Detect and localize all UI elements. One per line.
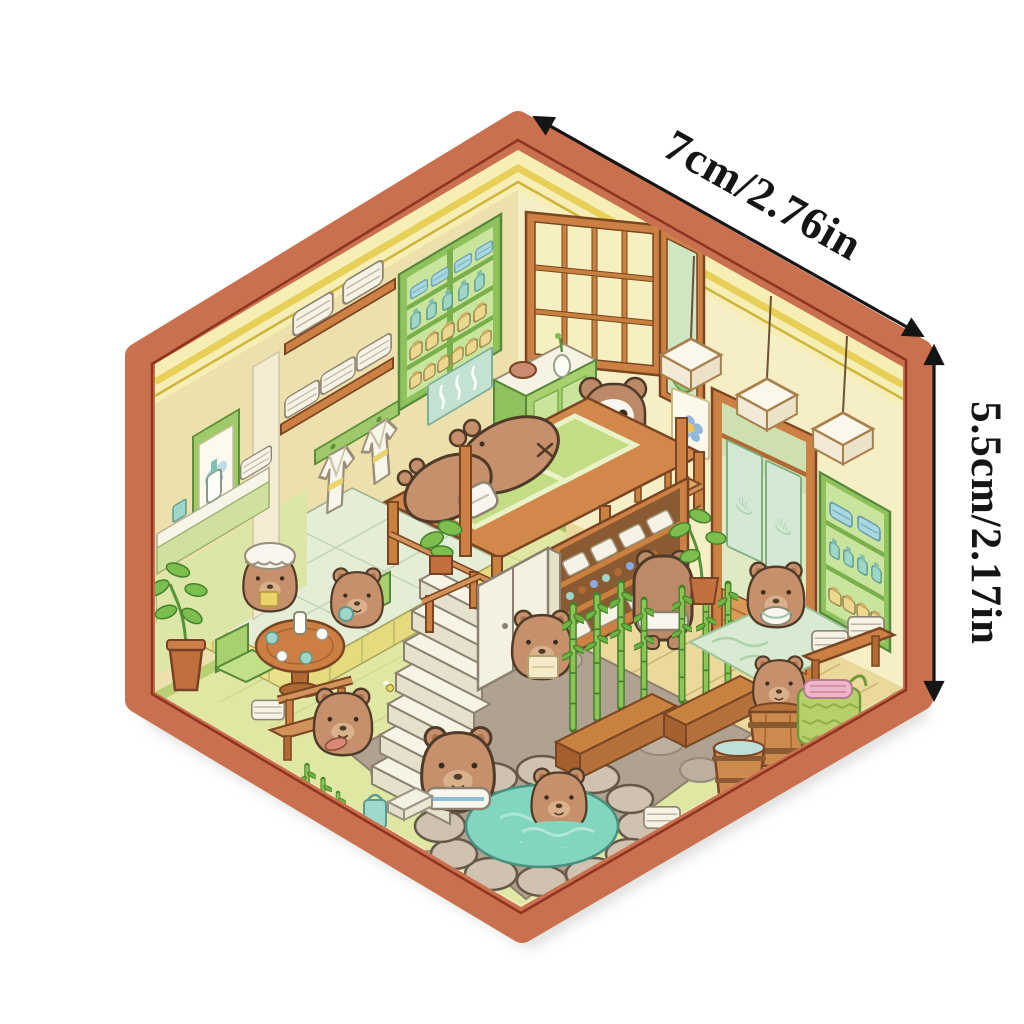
sliding-pane <box>660 228 704 418</box>
capybara-shower-cap <box>243 543 296 611</box>
capybara-with-bowl <box>748 563 805 628</box>
corner-post <box>460 446 471 556</box>
height-label: 5.5cm/2.17in <box>962 401 1009 645</box>
bee-icon <box>387 685 394 692</box>
lattice-window <box>526 212 662 376</box>
sticker-illustration: ♨ ♨ <box>0 0 1024 1024</box>
capybara-holding-towel <box>512 611 572 679</box>
capybara-with-cup <box>331 568 383 627</box>
bowl <box>510 362 536 378</box>
product-image: ♨ ♨ <box>0 0 1024 1024</box>
